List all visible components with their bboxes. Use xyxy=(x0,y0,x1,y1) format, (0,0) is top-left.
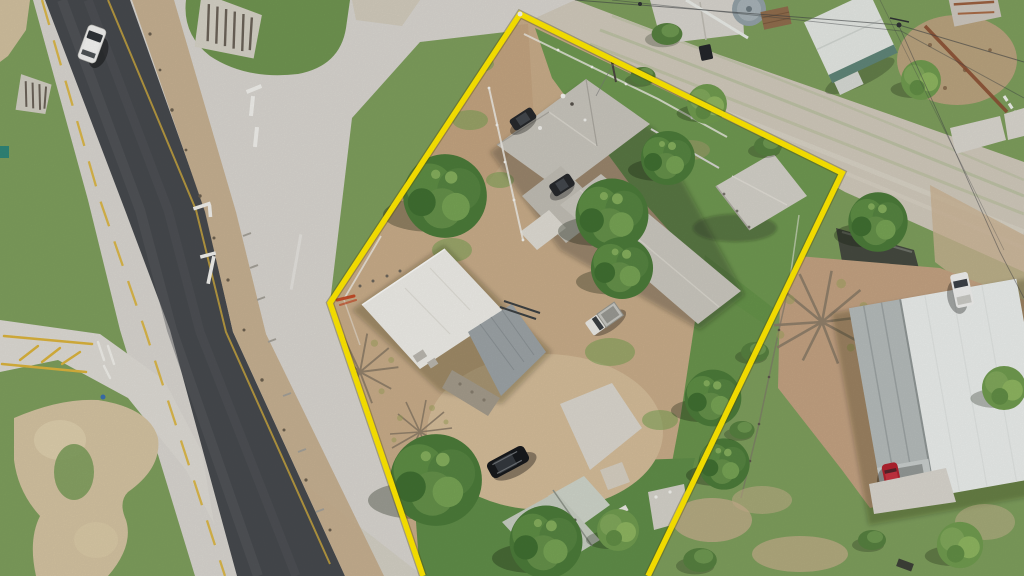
photo-grain xyxy=(0,0,1024,576)
aerial-photo xyxy=(0,0,1024,576)
